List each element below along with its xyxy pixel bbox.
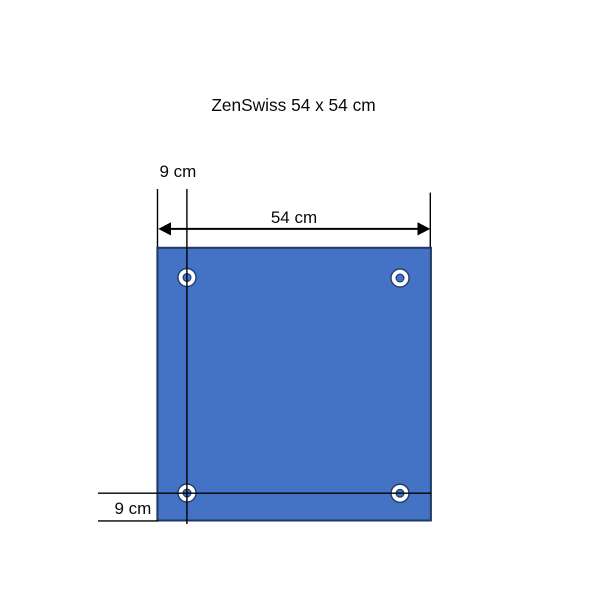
- svg-text:54 cm: 54 cm: [271, 208, 317, 227]
- svg-text:9 cm: 9 cm: [115, 499, 152, 518]
- svg-text:9 cm: 9 cm: [160, 162, 197, 181]
- svg-text:ZenSwiss 54 x 54 cm: ZenSwiss 54 x 54 cm: [211, 95, 375, 115]
